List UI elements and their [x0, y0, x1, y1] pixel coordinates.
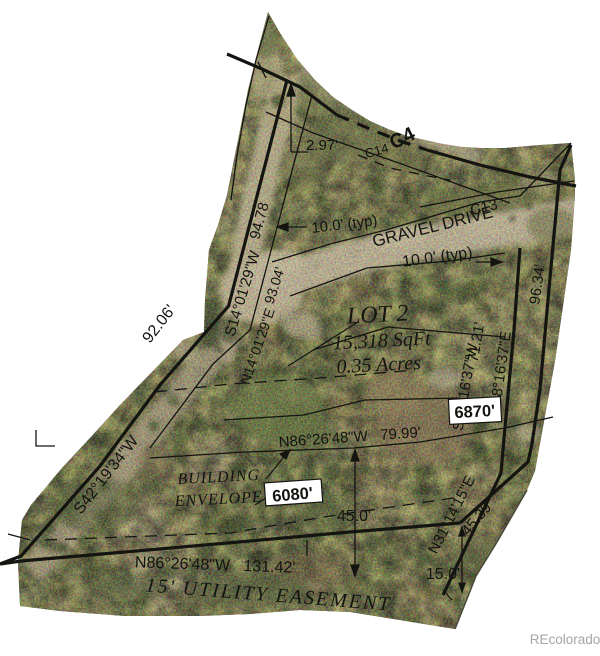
svg-text:6870': 6870' [454, 402, 496, 422]
svg-text:2.97': 2.97' [306, 137, 338, 154]
svg-text:REcolorado: REcolorado [530, 632, 600, 647]
svg-text:LOT 2: LOT 2 [345, 300, 409, 329]
svg-text:6080': 6080' [272, 484, 314, 505]
svg-text:0.35 Acres: 0.35 Acres [336, 352, 422, 378]
svg-text:15.0': 15.0' [426, 566, 460, 583]
svg-text:45.0': 45.0' [337, 508, 371, 525]
